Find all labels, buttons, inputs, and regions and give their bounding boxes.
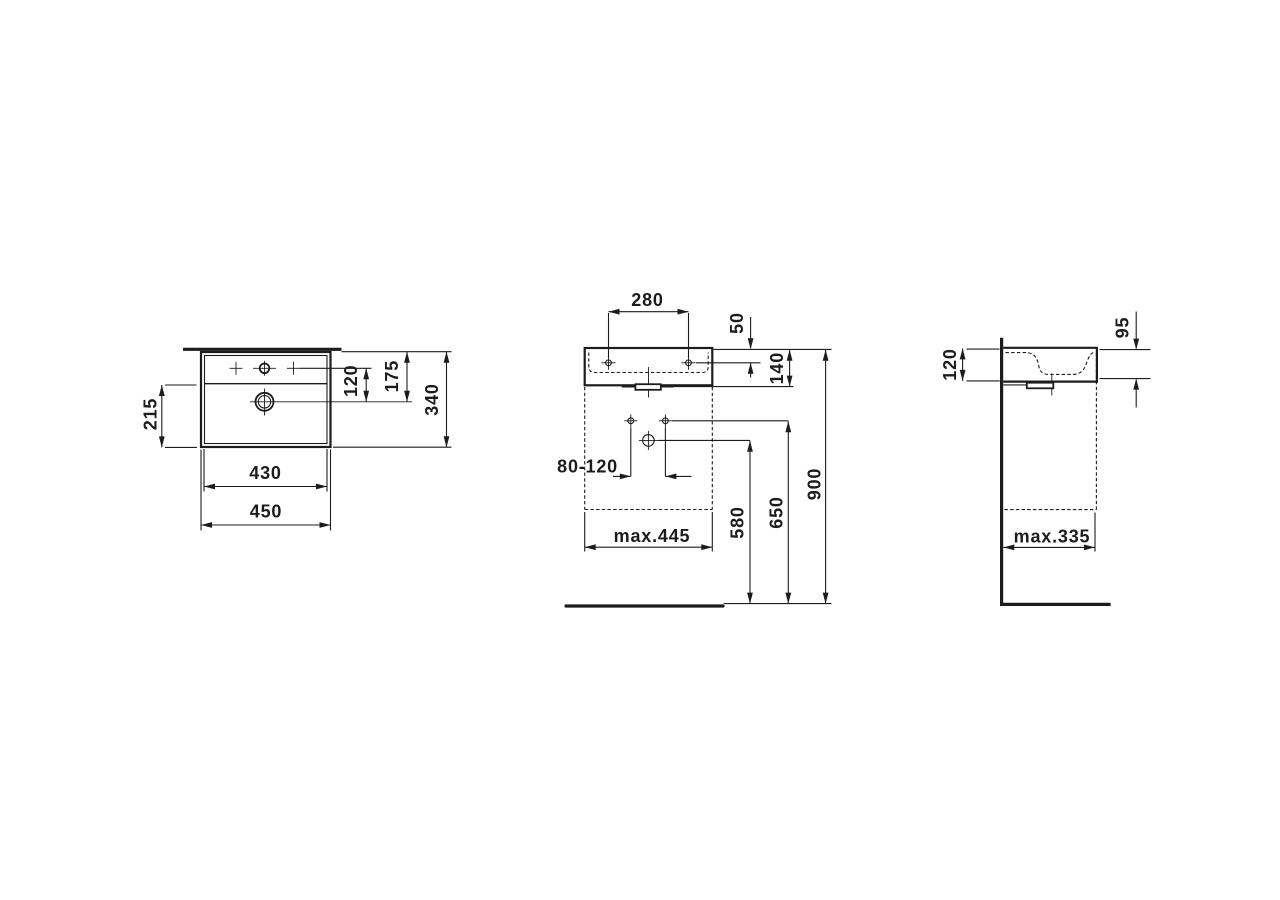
waste-outlet-icon	[639, 431, 658, 450]
basin-outer-rim	[201, 352, 331, 447]
dim-label-340: 340	[422, 383, 442, 415]
dim-label-430: 430	[249, 463, 281, 483]
trap-cover	[635, 384, 660, 390]
dim-wall-edge-height: 120	[940, 348, 1000, 381]
dim-label-280: 280	[631, 290, 663, 310]
dim-label-900: 900	[805, 468, 825, 500]
dim-label-175: 175	[382, 360, 402, 392]
fixing-hole-left-icon	[602, 356, 616, 370]
front-view: 80-120 280 50 140	[557, 290, 831, 606]
dim-fixing-hole-height: 650	[767, 421, 792, 603]
dim-bowl-front-depth: 215	[141, 385, 198, 447]
dim-rim-height: 900	[805, 350, 829, 604]
dim-label-215: 215	[141, 398, 161, 430]
dim-drain-outlet-height: 580	[728, 441, 753, 604]
dim-label-80-120: 80-120	[557, 457, 618, 477]
dim-label-50: 50	[727, 312, 747, 334]
dim-label-650: 650	[767, 496, 787, 528]
dim-inner-width: 430	[204, 449, 327, 492]
dim-outlet-offset-range: 80-120	[557, 428, 691, 480]
tap-hole-option-left-icon	[230, 362, 243, 375]
dim-basin-height: 140	[767, 350, 792, 387]
wall-fixing-right-icon	[659, 414, 672, 427]
dim-label-140: 140	[767, 352, 787, 384]
trap-cover	[1027, 383, 1054, 389]
technical-drawing-page: 215 120 175 340	[0, 0, 1280, 900]
dim-label-max445: max.445	[614, 526, 691, 546]
dim-label-120-top: 120	[341, 365, 361, 397]
washbasin-technical-drawing: 215 120 175 340	[0, 0, 1280, 900]
dim-rim-to-fixing-holes: 50	[727, 312, 753, 377]
side-view: 120 95 max.335	[940, 312, 1151, 605]
dim-front-edge-height: 95	[1100, 312, 1151, 408]
dim-label-450: 450	[250, 502, 282, 522]
dim-label-580: 580	[728, 506, 748, 538]
dim-max-depth: max.335	[1003, 513, 1095, 552]
fixing-hole-right-icon	[682, 356, 696, 370]
dim-label-max335: max.335	[1014, 527, 1091, 547]
basin-interior-profile	[1006, 353, 1094, 375]
dim-label-120-side: 120	[940, 348, 960, 380]
dim-tapline-to-drain: 120	[341, 365, 369, 402]
tap-hole-icon	[253, 361, 276, 376]
dim-max-width: max.445	[585, 512, 713, 552]
dim-overall-width: 450	[201, 450, 331, 531]
top-view: 215 120 175 340	[141, 349, 452, 530]
wall-floor-line	[1002, 338, 1111, 605]
dim-back-to-drain: 175	[382, 352, 410, 402]
wall-fixing-left-icon	[624, 414, 637, 427]
dim-label-95: 95	[1113, 317, 1133, 339]
